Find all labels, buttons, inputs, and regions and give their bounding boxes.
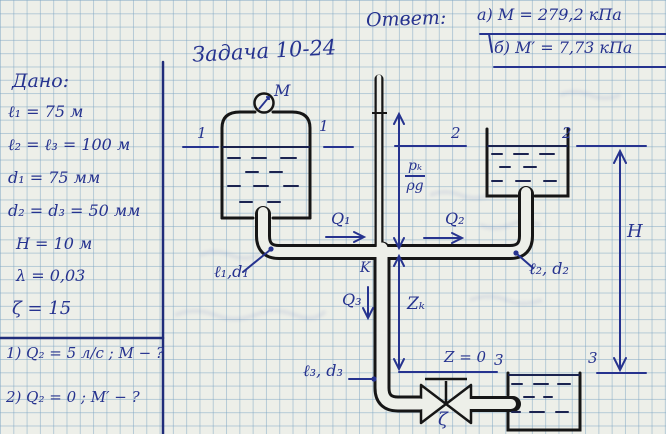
given-d1: d₁ = 75 мм (8, 170, 100, 187)
notebook-page: Задача 10-24 Ответ: а) M = 279,2 кПа б) … (0, 0, 666, 434)
q2-label: Q₂ (445, 211, 465, 228)
question-2: 2) Q₂ = 0 ; M′ − ? (6, 390, 140, 406)
q1-label: Q₁ (331, 211, 351, 228)
section1-right-label: 1 (319, 119, 329, 135)
zk-label: Zₖ (407, 296, 425, 314)
answer-label: Ответ: (366, 9, 447, 32)
k-node-label: K (360, 261, 370, 276)
left-tank (222, 112, 310, 218)
given-zeta: ζ = 15 (12, 300, 71, 319)
pipe1-label: ℓ₁,d₁ (214, 264, 249, 281)
section2-right-label: 2 (562, 126, 572, 142)
answer-b: б) M′ = 7,73 кПа (494, 40, 632, 57)
tanks (222, 112, 580, 430)
given-l1: ℓ₁ = 75 м (8, 104, 83, 121)
q3-label: Q₃ (342, 292, 362, 309)
section1-left-label: 1 (197, 126, 207, 142)
ink-bleed-ghosts (175, 92, 620, 319)
given-label: Дано: (12, 72, 69, 92)
given-d2-d3: d₂ = d₃ = 50 мм (8, 203, 140, 220)
question-1: 1) Q₂ = 5 л/с ; M − ? (6, 346, 164, 362)
given-lambda: λ = 0,03 (16, 268, 85, 285)
answer-a: а) M = 279,2 кПа (477, 7, 622, 24)
valve-zeta-label: ζ (438, 411, 448, 430)
section2-left-label: 2 (451, 126, 461, 142)
manometer-gauge (255, 94, 274, 113)
section3-left-label: 3 (494, 353, 504, 369)
given-l2-l3: ℓ₂ = ℓ₃ = 100 м (8, 137, 130, 154)
pk-numerator: pₖ (405, 158, 425, 177)
pipe2-label: ℓ₂, d₂ (529, 261, 569, 278)
q2-arrow (424, 233, 462, 243)
manometer-label: M (274, 83, 290, 100)
pipe3-label: ℓ₃, d₃ (303, 363, 343, 380)
q3-arrow (363, 287, 373, 318)
given-h: H = 10 м (16, 236, 92, 253)
zk-dimension-arrow (394, 256, 404, 369)
annotations (183, 34, 666, 379)
pk-denominator: ρg (405, 177, 425, 194)
pk-dimension-arrow (394, 114, 404, 248)
h-dimension-arrow (614, 151, 626, 370)
section3-right-label: 3 (588, 351, 598, 367)
q1-arrow (326, 232, 364, 242)
z-zero-label: Z = 0 (444, 350, 486, 366)
pk-rho-g-fraction: pₖ ρg (405, 158, 425, 194)
right-tank (487, 129, 568, 196)
h-label: H (627, 223, 643, 242)
